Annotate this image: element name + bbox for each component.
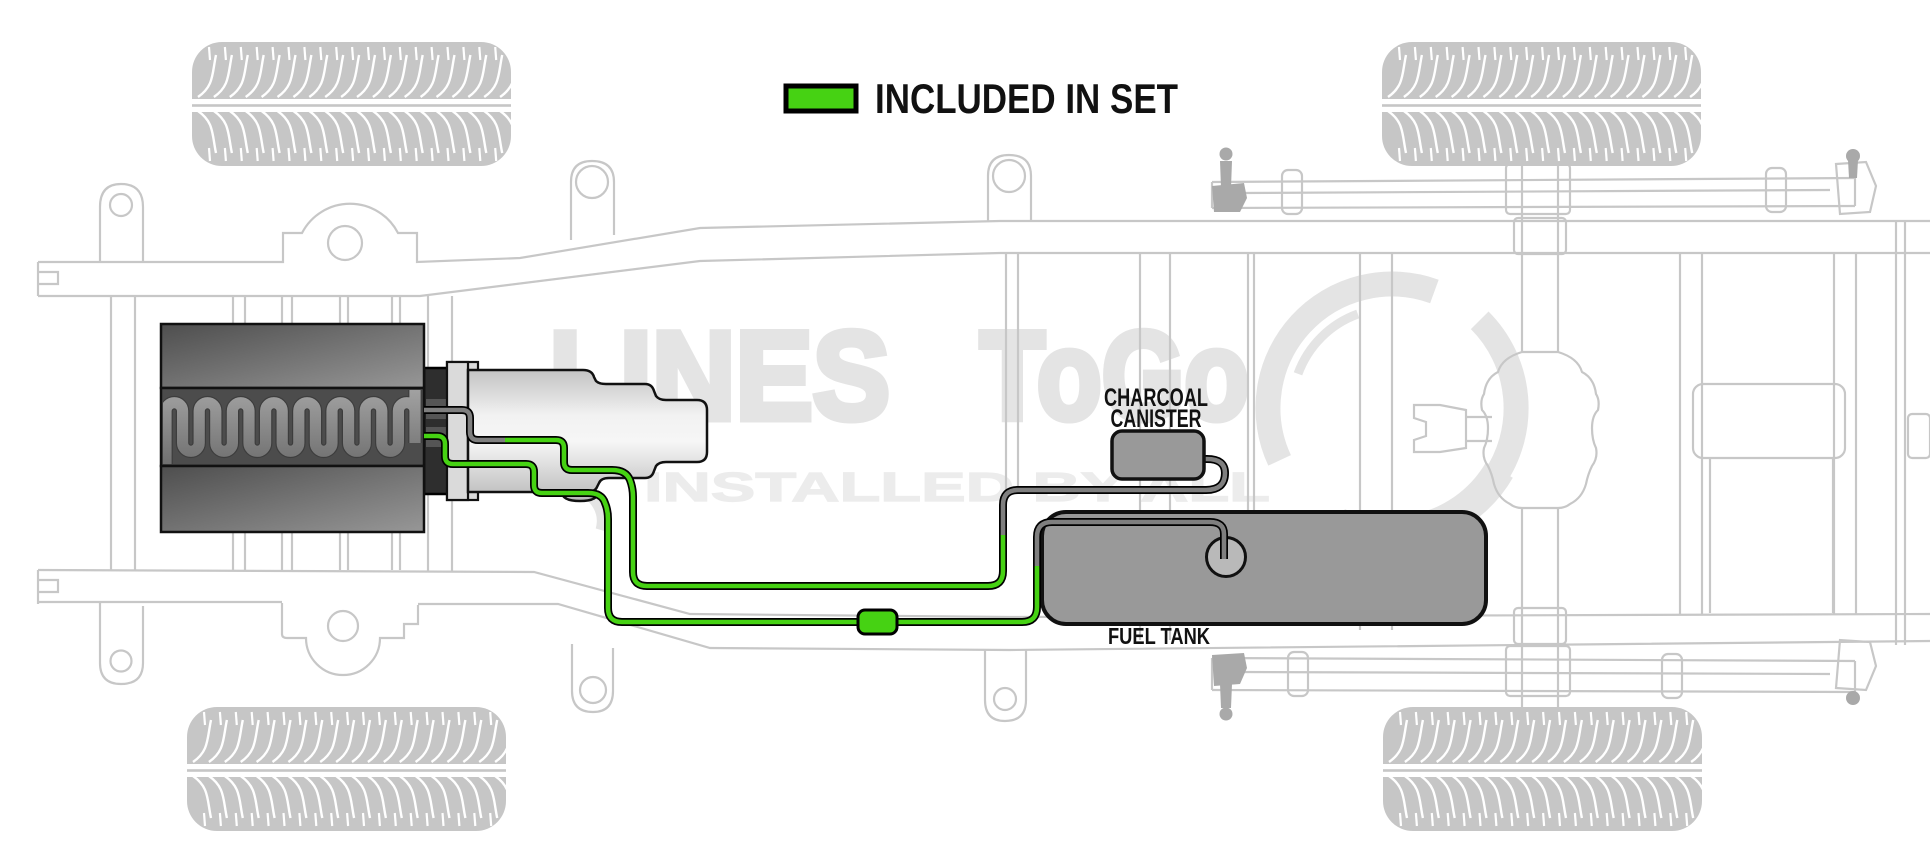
svg-text:CANISTER: CANISTER bbox=[1111, 405, 1202, 433]
svg-text:INCLUDED IN SET: INCLUDED IN SET bbox=[875, 75, 1178, 122]
svg-text:FUEL TANK: FUEL TANK bbox=[1108, 623, 1210, 649]
